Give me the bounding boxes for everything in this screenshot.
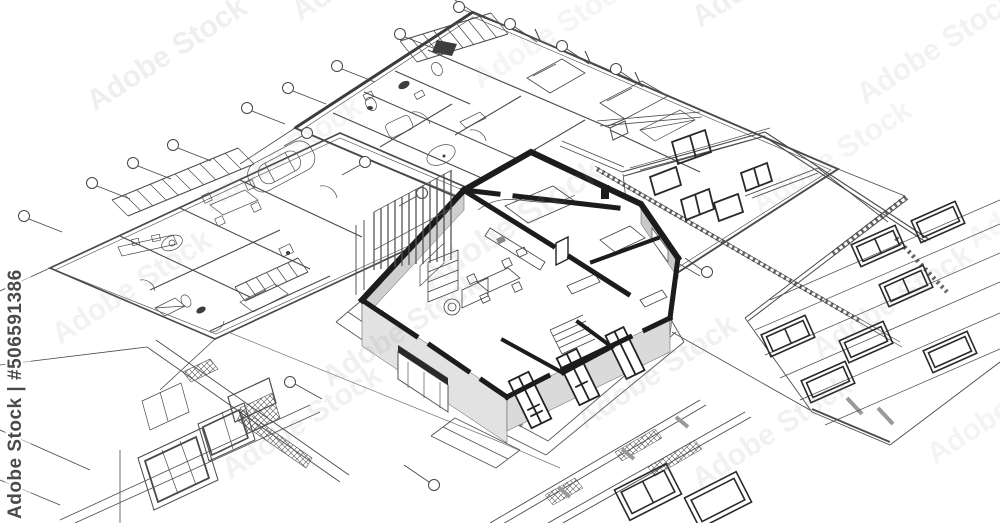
- stock-image-canvas: Adobe Stock Adobe Stock Adobe Stock Adob…: [0, 0, 1000, 523]
- architectural-drawing: Adobe Stock Adobe Stock Adobe Stock Adob…: [0, 0, 1000, 523]
